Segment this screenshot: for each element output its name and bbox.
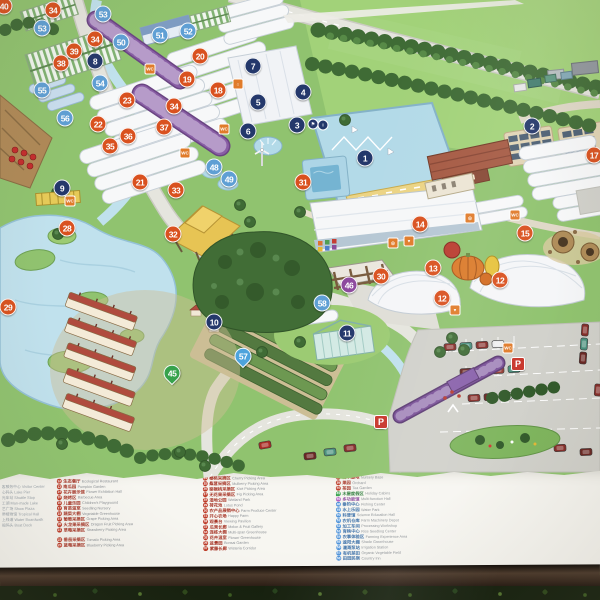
map-marker: 53 <box>95 6 112 23</box>
map-marker: 22 <box>90 116 107 133</box>
legend-name-en: Multi-span Greenhouse <box>228 530 266 535</box>
legend-name-en: Kiwi Picking Area <box>237 486 265 491</box>
map-marker: 52 <box>180 23 197 40</box>
legend-number-dot: 58 <box>336 556 341 561</box>
legend-name-en: Rice Seedling Center <box>361 529 396 534</box>
facility-icon: WC <box>503 343 514 354</box>
legend-number-dot: 46 <box>336 497 341 502</box>
legend-name-en: Farming Experience Area <box>366 534 408 539</box>
map-marker: 3 <box>289 117 306 134</box>
map-marker: 37 <box>156 119 173 136</box>
map-marker: 45 <box>160 361 184 385</box>
legend-number-dot: 20 <box>57 522 62 527</box>
map-marker: 23 <box>119 92 136 109</box>
legend-name-cn: 蓝莓采摘区 <box>64 542 86 548</box>
legend-name-cn: 田园民宿 <box>343 555 360 561</box>
legend-name-en: Irrigation Station <box>361 545 388 550</box>
legend-name-en: Cherry Picking Area <box>232 476 265 481</box>
legend-name-cn: 草莓采摘区 <box>64 527 86 533</box>
map-marker: 39 <box>66 43 83 60</box>
background-foliage <box>0 586 600 600</box>
legend-name-en: Wetland Park <box>228 497 250 502</box>
map-marker: 8 <box>87 53 104 70</box>
legend-name-en: Grape Picking Area <box>86 517 118 522</box>
legend-row-cutoff: 船码头 Boat Dock <box>2 522 57 528</box>
legend-name-en: Strawberry Picking Area <box>87 527 126 532</box>
legend-name-en: Organic Vegetable Field <box>361 550 400 555</box>
map-marker: 36 <box>120 128 137 145</box>
map-marker: 2 <box>524 118 541 135</box>
facility-icon: ♥ <box>404 236 415 247</box>
map-marker: 58 <box>314 295 331 312</box>
map-marker: 30 <box>373 268 390 285</box>
legend-name-en: Fishing Center <box>361 502 385 507</box>
legend-column-b: 24 樱桃采摘区 Cherry Picking Area 25 桑葚采摘区 Mu… <box>203 475 277 551</box>
legend-name-en: Tea Garden <box>352 486 371 491</box>
legend-number-dot: 40 <box>336 486 341 491</box>
legend-number-dot: 55 <box>336 540 341 545</box>
map-marker: 11 <box>339 325 356 342</box>
legend-name-en: Processing Workshop <box>361 523 397 528</box>
facility-icon: WC <box>219 124 230 135</box>
facility-icon: ⌂ <box>233 79 244 90</box>
map-marker: 7 <box>245 58 262 75</box>
legend-number-dot: 52 <box>336 523 341 528</box>
map-marker: 34 <box>45 2 62 19</box>
legend-name-en: Tomato Picking Area <box>87 537 121 542</box>
legend-number-dot: 56 <box>336 545 341 550</box>
map-marker: 28 <box>59 220 76 237</box>
legend-name-en: Fig Picking Area <box>237 492 264 497</box>
map-marker: 35 <box>102 138 119 155</box>
legend-name-en: Mulberry Picking Area <box>232 481 268 486</box>
map-marker: 13 <box>425 260 442 277</box>
legend-name-en: Seedling Nursery <box>82 506 110 511</box>
legend-row: 37 紫藤长廊 Wisteria Corridor <box>203 545 277 551</box>
facility-icon: WC <box>65 196 76 207</box>
map-marker: 57 <box>231 344 255 368</box>
legend-row: 21 草莓采摘区 Strawberry Picking Area <box>57 527 133 533</box>
legend-name-en: Farm Machinery Depot <box>361 518 399 523</box>
map-marker: 51 <box>152 27 169 44</box>
facility-icon: WC <box>510 210 521 221</box>
map-marker: 48 <box>206 159 223 176</box>
map-marker: 1 <box>357 150 374 167</box>
map-marker: 55 <box>34 82 51 99</box>
legend-number-dot: 14 <box>57 490 62 495</box>
legend-number-dot: 16 <box>57 500 62 505</box>
legend-number-dot: 31 <box>203 514 208 519</box>
map-marker: 50 <box>113 34 130 51</box>
legend-name-en: Wisteria Corridor <box>228 546 256 551</box>
marker-layer: 1234567891011121213141517181920212223282… <box>0 0 600 486</box>
legend-name-en: Children's Playground <box>82 500 118 505</box>
map-marker: 46 <box>341 277 358 294</box>
map-marker: 19 <box>179 71 196 88</box>
facility-icon: WC <box>145 64 156 75</box>
map-marker: 18 <box>210 82 227 99</box>
map-marker: 31 <box>295 174 312 191</box>
legend-name-en: Lotus Pond <box>224 503 243 508</box>
facility-icon: ◎ <box>465 213 476 224</box>
map-marker: 49 <box>221 171 238 188</box>
legend-name-en: Viewing Pavilion <box>224 519 251 524</box>
legend-name-en: Pumpkin Garden <box>78 484 106 489</box>
legend-column-c: 38 苗木基地 Nursery Base 39 果园 Orchard 40 茶园… <box>336 474 408 561</box>
legend-row: 58 田园民宿 Country Inn <box>336 555 407 561</box>
legend-name-en: Flower Exhibition Hall <box>86 489 122 494</box>
map-marker: 15 <box>517 225 534 242</box>
legend-name-en: Water Park <box>361 507 379 512</box>
map-marker: 54 <box>92 75 109 92</box>
map-marker: 32 <box>165 226 182 243</box>
legend-number-dot: 57 <box>336 550 341 555</box>
legend-name-en: Orchard <box>352 480 365 485</box>
facility-icon: ♥ <box>450 305 461 316</box>
map-marker: 17 <box>586 147 600 164</box>
legend-number-dot: 28 <box>203 497 208 502</box>
map-board-photo: 1234567891011121213141517181920212223282… <box>0 0 600 600</box>
legend-number-dot: 45 <box>336 491 341 496</box>
legend-name-en: Flower Greenhouse <box>228 535 260 540</box>
map-marker: 40 <box>0 0 13 15</box>
legend-name-en: Blueberry Picking Area <box>87 543 124 548</box>
legend-name-en: Science Education Hall <box>357 513 395 518</box>
legend-column-cutoff: 客服务中心 Visitor Center心码头 Lake Pier光车站 Shu… <box>2 484 57 528</box>
legend-name-en: Holiday Cabins <box>365 491 390 496</box>
map-marker: 34 <box>87 31 104 48</box>
legend-column-a: 12 生态餐厅 Ecological Restaurant 13 南瓜园 Pum… <box>57 478 133 548</box>
legend-name-cn: 紫藤长廊 <box>210 545 227 551</box>
legend-number-dot: 26 <box>203 487 208 492</box>
legend-name-en: Barbecue Area <box>78 495 102 500</box>
legend-number-dot: 50 <box>336 513 341 518</box>
facility-icon: WC <box>180 148 191 159</box>
legend-name-en: Melon & Fruit Gallery <box>228 524 263 529</box>
legend-name-en: Bonsai Garden <box>224 541 249 546</box>
legend-row: 23 蓝莓采摘区 Blueberry Picking Area <box>57 542 133 548</box>
legend-name-en: Vegetable Greenhouse <box>82 511 120 516</box>
legend-number-dot: 19 <box>57 517 62 522</box>
map-marker: 33 <box>168 182 185 199</box>
legend-number-dot: 37 <box>203 546 208 551</box>
map-marker: 53 <box>34 20 51 37</box>
legend-number-dot: 32 <box>203 519 208 524</box>
legend-number-dot: 21 <box>57 527 62 532</box>
map-marker: 6 <box>240 123 257 140</box>
legend-panel: 客服务中心 Visitor Center心码头 Lake Pier光车站 Shu… <box>0 469 600 570</box>
map-marker: 9 <box>54 180 71 197</box>
parking-sign: P <box>511 357 525 371</box>
legend-name-en: Dragon Fruit Picking Area <box>91 522 133 527</box>
map-marker: 20 <box>192 48 209 65</box>
facility-icon: ◎ <box>388 238 399 249</box>
map-marker: 38 <box>53 55 70 72</box>
legend-number-dot: 33 <box>203 524 208 529</box>
map-marker: 34 <box>166 98 183 115</box>
facility-icon: i <box>318 120 329 131</box>
map-marker: 21 <box>132 174 149 191</box>
map-marker: 12 <box>492 272 509 289</box>
legend-number-dot: 27 <box>203 492 208 497</box>
parking-sign: P <box>374 415 388 429</box>
map-marker: 4 <box>295 84 312 101</box>
legend-name-en: Shade Greenhouse <box>361 540 393 545</box>
map-marker: 12 <box>434 290 451 307</box>
legend-number-dot: 23 <box>57 543 62 548</box>
map-marker: 29 <box>0 299 17 316</box>
map-marker: 14 <box>412 216 429 233</box>
legend-number-dot: 36 <box>203 541 208 546</box>
legend-name-en: Happy Farm <box>228 514 248 519</box>
legend-name-en: Multi-function Hall <box>361 496 390 501</box>
legend-name-en: Ecological Restaurant <box>82 479 118 484</box>
map-marker: 10 <box>206 314 223 331</box>
map-marker: 56 <box>57 110 74 127</box>
legend-number-dot: 51 <box>336 518 341 523</box>
map-marker: 5 <box>250 94 267 111</box>
legend-name-en: Farm Produce Center <box>241 508 277 513</box>
legend-number-dot: 15 <box>57 495 62 500</box>
legend-name-en: Country Inn <box>361 556 380 561</box>
